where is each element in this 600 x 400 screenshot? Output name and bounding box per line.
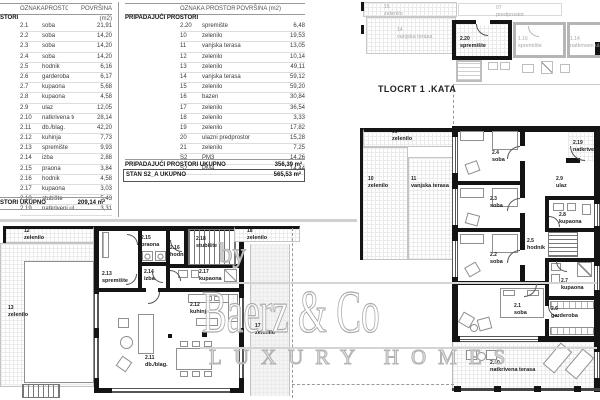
table-cell: kupaona [42, 83, 74, 92]
table-row: 2.4soba14,20 [20, 53, 112, 63]
table-cell: 11 [180, 42, 202, 51]
table-cell: 6,48 [267, 22, 305, 31]
table-cell: bazen [202, 93, 267, 102]
furniture [577, 262, 592, 277]
table-cell: zelenilo [202, 114, 267, 123]
room-label: 2.2soba [490, 252, 503, 265]
table-row: 2.11db./blag.42,20 [20, 124, 112, 134]
plan-shape: hodnik [527, 245, 545, 251]
table-cell: kupaona [42, 93, 74, 102]
plan-shape: hodnik [170, 252, 188, 258]
plan-shape: db./blag. [145, 362, 168, 368]
window [452, 137, 458, 173]
table-cell: 2.9 [20, 104, 42, 113]
table-row: 11vanjska terasa13,05 [180, 42, 305, 52]
table-cell: 14,20 [74, 32, 112, 41]
table-cell: kupaona [42, 185, 74, 194]
table-row: 2.15praona3,84 [20, 165, 112, 175]
table-cell: 2.17 [20, 185, 42, 194]
plan-shape [453, 84, 600, 85]
table-cell: natkrivena terasa [42, 114, 74, 123]
table-footer: STORI UKUPNO 209,14 m² [0, 197, 112, 210]
window [452, 241, 458, 277]
shelf-icon [550, 327, 594, 335]
wall [454, 386, 461, 392]
door-swing-icon [148, 292, 160, 304]
table-row: 2.5hodnik6,16 [20, 63, 112, 73]
room-label: 1.14natkriveni ulaz [570, 36, 600, 49]
table-row: 21zelenilo7,25 [180, 144, 305, 154]
table-cell: 6,17 [74, 73, 112, 82]
table-cell: zelenilo [202, 53, 267, 62]
table-section-title: PRIPADAJUĆI PROSTORI [125, 14, 198, 22]
furniture [204, 371, 212, 377]
wall [494, 386, 501, 392]
stairs-icon [548, 232, 578, 257]
table-cell: 2.3 [20, 42, 42, 51]
table-cell: zelenilo [202, 124, 267, 133]
table-cell: 30,84 [267, 93, 305, 102]
plan-shape: soba [490, 203, 503, 209]
table-cell: garderoba [42, 73, 74, 82]
plan-shape: izba [144, 276, 155, 282]
plan-shape: POVRŠINA (m2) [68, 4, 112, 14]
room-label: 2.9ulaz [556, 176, 567, 189]
table-cell: 14,20 [74, 42, 112, 51]
shelf-icon [102, 232, 109, 258]
table-cell: 4,58 [74, 175, 112, 184]
plan-shape: zelenilo [8, 312, 28, 318]
window [594, 352, 600, 378]
plan-shape: soba [490, 259, 503, 265]
table-cell: 2,88 [74, 154, 112, 163]
section-divider-band [0, 219, 357, 222]
table-cell: soba [42, 22, 74, 31]
plan-shape: zelenilo [392, 136, 412, 142]
table-row: 18zelenilo3,33 [180, 114, 305, 124]
plan-shape [363, 2, 457, 17]
table-cell: ulazni predprostor [202, 134, 267, 143]
plan-shape: kupaona [559, 219, 582, 225]
furniture [116, 356, 133, 373]
plan-shape [24, 261, 94, 383]
room-label: 13zelenilo [8, 305, 28, 318]
window [594, 204, 600, 226]
plan-title: TLOCRT 1 .KATA [378, 84, 456, 94]
table-row: 13zelenilo49,11 [180, 63, 305, 73]
table-cell: 59,12 [267, 73, 305, 82]
room-label: 12zelenilo [24, 228, 44, 241]
table-cell: zelenilo [202, 144, 267, 153]
table-row: 2.8kupaona4,58 [20, 93, 112, 103]
table-row: 2.13spremište9,93 [20, 144, 112, 154]
area-table-left: OZNAKA PROSTOR POVRŠINA (m2) STORI 2.1so… [0, 0, 112, 218]
room-label: 2.11db./blag. [145, 355, 168, 368]
table-row: 2.3soba14,20 [20, 42, 112, 52]
table-total: STAN S2_A UKUPNO 565,53 m² [123, 169, 305, 182]
table-row: 2.12kuhinja7,73 [20, 134, 112, 144]
table-row: 2.17kupaona3,03 [20, 185, 112, 195]
room-label: 2.5hodnik [527, 238, 545, 251]
room-label: 15zelenilo [384, 4, 403, 17]
table-rows: 2.1soba21,912.2soba14,202.3soba14,202.4s… [0, 22, 112, 216]
table-cell: 14,20 [74, 53, 112, 62]
table-cell: spremište [202, 22, 267, 31]
table-cell: 2.1 [20, 22, 42, 31]
plan-shape: STAN S2_A UKUPNO [126, 170, 274, 181]
watermark-tagline: LUXURY HOMES [209, 345, 517, 370]
room-label: 2.4soba [492, 150, 505, 163]
plan-shape [500, 62, 510, 70]
table-cell: zelenilo [202, 83, 267, 92]
table-cell: 7,25 [267, 144, 305, 153]
wall [168, 334, 172, 338]
table-cell: soba [42, 32, 74, 41]
table-row: 2.6garderoba6,17 [20, 73, 112, 83]
table-cell: 16 [180, 93, 202, 102]
plan-shape: zelenilo [24, 235, 44, 241]
furniture [460, 131, 484, 141]
wall [361, 2, 364, 11]
table-cell: 2.5 [20, 63, 42, 72]
room-label: 2.6garderoba [551, 306, 578, 319]
table-row: 2.20spremište6,48 [180, 22, 305, 32]
table-cell: 21 [180, 144, 202, 153]
plan-shape: soba [514, 310, 527, 316]
window [452, 189, 458, 225]
table-cell: spremište [42, 144, 74, 153]
table-cell: 2.15 [20, 165, 42, 174]
table-cell: zelenilo [202, 104, 267, 113]
table-cell: 28,14 [74, 114, 112, 123]
door-swing-icon [127, 234, 138, 245]
window [594, 266, 600, 290]
table-row: 16bazen30,84 [180, 93, 305, 103]
table-cell: 10,14 [267, 53, 305, 62]
wall [452, 181, 525, 185]
plan-shape: kupaona [561, 285, 584, 291]
table-row: 2.7kupaona5,68 [20, 83, 112, 93]
plan-shape [520, 250, 525, 265]
room-label: 2.18stubište [196, 236, 217, 249]
furniture [503, 290, 515, 296]
table-cell: hodnik [42, 175, 74, 184]
plan-shape: POVRŠINA (m2) [235, 4, 305, 14]
room-label: 14vanjska terasa [397, 27, 432, 40]
room-label: 11vanjska terasa [411, 176, 449, 189]
table-cell: 2.12 [20, 134, 42, 143]
plan-shape [488, 62, 498, 70]
table-cell: 20 [180, 134, 202, 143]
plan-shape: soba [492, 157, 505, 163]
plan-shape [5, 226, 94, 243]
table-cell: praona [42, 165, 74, 174]
room-label: 1.16spremište [518, 36, 542, 49]
table-cell: 15 [180, 83, 202, 92]
plan-shape: spremište [518, 43, 542, 49]
table-divider-line [118, 2, 119, 217]
plan-shape [456, 60, 482, 82]
wall [534, 386, 541, 392]
room-label: 2.8kupaona [559, 212, 582, 225]
plan-shape: spremište [460, 43, 486, 49]
room-label: 2.19natkriveni ulaz [573, 140, 600, 153]
table-rows: 2.20spremište6,4810zelenilo19,5311vanjsk… [125, 22, 305, 175]
table-cell: vanjska terasa [202, 42, 267, 51]
table-section-title: STORI [0, 14, 18, 22]
table-row: 12zelenilo10,14 [180, 53, 305, 63]
table-cell: 13,05 [267, 42, 305, 51]
furniture [567, 203, 576, 211]
table-cell: 6,16 [74, 63, 112, 72]
furniture [470, 324, 478, 332]
table-cell: vanjska terasa [202, 73, 267, 82]
plan-shape: vanjska terasa [411, 183, 449, 189]
room-label: 2.3soba [490, 196, 503, 209]
plan-shape: vanjska terasa [397, 34, 432, 40]
table-cell: 2.4 [20, 53, 42, 62]
watermark-by: by [219, 238, 246, 269]
table-cell: 2.11 [20, 124, 42, 133]
plan-shape [522, 64, 534, 73]
table-row: 2.14izba2,88 [20, 154, 112, 164]
table-cell: 12 [180, 53, 202, 62]
table-cell: 2.2 [20, 32, 42, 41]
furniture [582, 204, 591, 215]
table-cell: 2.16 [20, 175, 42, 184]
table-cell: 2.7 [20, 83, 42, 92]
plan-shape: spremište [102, 278, 128, 284]
table-cell: 2.14 [20, 154, 42, 163]
plan-shape: PROSTOR [45, 4, 68, 14]
plan-shape: natkriveni ulaz [573, 147, 600, 153]
room-label: 2.14izba [144, 269, 155, 282]
plan-shape: zelenilo [247, 235, 267, 241]
table-cell: 12,05 [74, 104, 112, 113]
plan-shape: PROSTOR [206, 4, 235, 14]
table-row: 2.1soba21,91 [20, 22, 112, 32]
table-row: 2.9ulaz12,05 [20, 104, 112, 114]
table-cell: soba [42, 53, 74, 62]
watermark-brand: Baerz & Co [202, 284, 380, 340]
room-label: 2.7kupaona [561, 278, 584, 291]
window [112, 388, 230, 393]
dashed-line [292, 384, 454, 385]
furniture [180, 341, 188, 347]
table-cell: 9,93 [74, 144, 112, 153]
table-cell: 2.13 [20, 144, 42, 153]
room-label: 09zelenilo [392, 129, 412, 142]
room-label: 2.13spremište [102, 271, 128, 284]
table-row: 2.2soba14,20 [20, 32, 112, 42]
table-cell: hodnik [42, 63, 74, 72]
furniture [465, 213, 480, 227]
table-row: 2.16hodnik4,58 [20, 175, 112, 185]
furniture [138, 314, 154, 354]
room-label: 2.20spremište [460, 36, 486, 49]
furniture [155, 251, 166, 261]
wall [574, 386, 581, 392]
furniture [192, 341, 200, 347]
plan-shape [520, 198, 525, 213]
plan-shape: OZNAKA [180, 4, 206, 14]
plan-shape: 209,14 m² [78, 198, 112, 209]
plan-shape: OZNAKA [20, 4, 45, 14]
area-table-right: OZNAKA PROSTOR POVRŠINA (m2) PRIPADAJUĆI… [125, 0, 305, 185]
plan-shape: zelenilo [368, 183, 388, 189]
wall [3, 226, 6, 243]
furniture [465, 160, 481, 175]
furniture [460, 234, 484, 244]
furniture [180, 371, 188, 377]
furniture [192, 371, 200, 377]
plan-shape [520, 146, 525, 161]
table-cell: 36,54 [267, 104, 305, 113]
table-row: 14vanjska terasa59,12 [180, 73, 305, 83]
table-cell: 15,28 [267, 134, 305, 143]
plan-shape: predprostor [496, 12, 524, 18]
table-cell: 3,03 [74, 185, 112, 194]
wall [138, 262, 170, 266]
table-cell: 3,33 [267, 114, 305, 123]
table-cell: 14 [180, 73, 202, 82]
furniture [118, 318, 129, 328]
room-label: 2.1soba [514, 303, 527, 316]
wall [545, 196, 600, 200]
window [94, 338, 99, 378]
room-label: 10zelenilo [368, 176, 388, 189]
table-cell: zelenilo [202, 63, 267, 72]
wall [452, 228, 525, 232]
table-cell: 13 [180, 63, 202, 72]
plan-shape: stubište [196, 243, 217, 249]
plan-shape: praona [141, 242, 159, 248]
table-cell: zelenilo [202, 32, 267, 41]
furniture [477, 317, 493, 332]
table-cell: db./blag. [42, 124, 74, 133]
table-cell: 2.10 [20, 114, 42, 123]
table-cell: 17 [180, 104, 202, 113]
furniture [142, 251, 153, 261]
table-cell: 2.20 [180, 22, 202, 31]
plan-shape [362, 147, 408, 260]
plan-shape: garderoba [551, 313, 578, 319]
table-cell: 49,11 [267, 63, 305, 72]
plan-shape: STORI UKUPNO [0, 198, 78, 209]
table-cell: 2.6 [20, 73, 42, 82]
table-row: 20ulazni predprostor15,28 [180, 134, 305, 144]
table-cell: 18 [180, 114, 202, 123]
table-cell: izba [42, 154, 74, 163]
furniture [464, 261, 481, 277]
plan-shape [408, 157, 455, 260]
wall [166, 226, 170, 292]
table-cell: 19,53 [267, 32, 305, 41]
table-cell: 10 [180, 32, 202, 41]
room-label: 2.16hodnik [170, 245, 188, 258]
window [94, 294, 99, 328]
room-label: 07predprostor [496, 5, 524, 18]
table-cell: 4,58 [74, 93, 112, 102]
plan-shape: 565,53 m² [274, 170, 302, 181]
table-cell: 42,20 [74, 124, 112, 133]
stairs-icon [22, 384, 60, 398]
table-cell: 17,82 [267, 124, 305, 133]
table-row: 17zelenilo36,54 [180, 104, 305, 114]
furniture [553, 203, 564, 211]
furniture [460, 188, 484, 198]
room-label: 18zelenilo [247, 228, 267, 241]
table-row: 2.10natkrivena terasa28,14 [20, 114, 112, 124]
table-cell: ulaz [42, 104, 74, 113]
furniture [120, 336, 133, 349]
furniture [191, 270, 199, 278]
table-cell: 3,84 [74, 165, 112, 174]
table-cell: 5,68 [74, 83, 112, 92]
wall [360, 128, 363, 260]
table-cell: 21,91 [74, 22, 112, 31]
wall [548, 296, 600, 300]
table-cell: 19 [180, 124, 202, 133]
plan-shape [541, 61, 553, 74]
plan-shape [560, 64, 570, 73]
plan-shape: ulaz [556, 183, 567, 189]
table-row: 10zelenilo19,53 [180, 32, 305, 42]
table-row: 19zelenilo17,82 [180, 124, 305, 134]
furniture [176, 348, 212, 370]
plan-shape: natkriveni ulaz [570, 43, 600, 49]
table-cell: 2.8 [20, 93, 42, 102]
table-row: 15zelenilo59,20 [180, 83, 305, 93]
table-cell: kuhinja [42, 134, 74, 143]
table-cell: 59,20 [267, 83, 305, 92]
wall [361, 25, 364, 34]
room-label: 2.15praona [141, 235, 159, 248]
plan-shape: zelenilo [384, 11, 403, 17]
table-cell: 7,73 [74, 134, 112, 143]
table-cell: soba [42, 42, 74, 51]
floorplan-sheet: OZNAKA PROSTOR POVRŠINA (m2) STORI 2.1so… [0, 0, 600, 400]
